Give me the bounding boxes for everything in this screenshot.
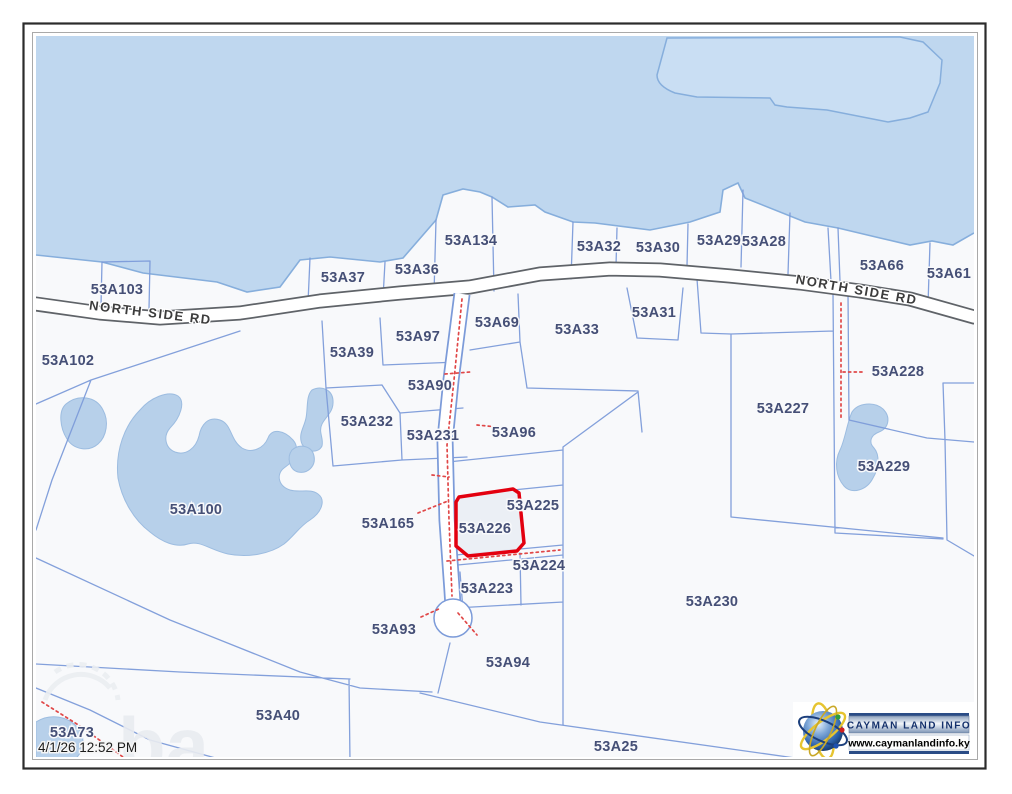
parcel-label-53A224: 53A224 bbox=[513, 558, 566, 574]
map-viewer-window: { "frame": { "timestamp": "4/1/26 12:52 … bbox=[0, 0, 1012, 794]
parcel-label-53A94: 53A94 bbox=[486, 655, 530, 671]
pond-small bbox=[289, 446, 314, 472]
parcel-label-53A231: 53A231 bbox=[407, 428, 460, 444]
parcel-label-53A134: 53A134 bbox=[445, 233, 498, 249]
parcel-label-53A61: 53A61 bbox=[927, 266, 971, 282]
parcel-label-53A229: 53A229 bbox=[858, 459, 911, 475]
parcel-label-53A36: 53A36 bbox=[395, 262, 439, 278]
parcel-label-53A73: 53A73 bbox=[50, 725, 94, 741]
parcel-label-53A69: 53A69 bbox=[475, 315, 519, 331]
parcel-label-53A226[interactable]: 53A226 bbox=[459, 521, 512, 537]
parcel-label-53A40: 53A40 bbox=[256, 708, 300, 724]
parcel-label-53A28: 53A28 bbox=[742, 234, 786, 250]
parcel-label-53A33: 53A33 bbox=[555, 322, 599, 338]
parcel-label-53A230: 53A230 bbox=[686, 594, 739, 610]
parcel-label-53A100: 53A100 bbox=[170, 502, 223, 518]
parcel-label-53A25: 53A25 bbox=[594, 739, 638, 755]
parcel-label-53A223: 53A223 bbox=[461, 581, 514, 597]
parcel-label-53A90: 53A90 bbox=[408, 378, 452, 394]
parcel-label-53A102: 53A102 bbox=[42, 353, 95, 369]
cadastral-map[interactable]: ba 53A10353A10253A3753A3653A13453A3253A3… bbox=[0, 0, 1012, 794]
parcel-label-53A96: 53A96 bbox=[492, 425, 536, 441]
parcel-label-53A103: 53A103 bbox=[91, 282, 144, 298]
brand-url: www.caymanlandinfo.ky bbox=[847, 738, 970, 750]
parcel-label-53A31: 53A31 bbox=[632, 305, 676, 321]
parcel-label-53A97: 53A97 bbox=[396, 329, 440, 345]
parcel-label-53A39: 53A39 bbox=[330, 345, 374, 361]
parcel-label-53A165: 53A165 bbox=[362, 516, 415, 532]
parcel-label-53A32: 53A32 bbox=[577, 239, 621, 255]
parcel-label-53A228: 53A228 bbox=[872, 364, 925, 380]
parcel-label-53A37: 53A37 bbox=[321, 270, 365, 286]
parcel-label-53A227: 53A227 bbox=[757, 401, 810, 417]
parcel-label-53A93: 53A93 bbox=[372, 622, 416, 638]
cayman-land-info-logo: CAYMAN LAND INFO www.caymanlandinfo.ky bbox=[793, 702, 974, 761]
parcel-label-53A232: 53A232 bbox=[341, 414, 394, 430]
cul-de-sac bbox=[434, 599, 472, 637]
parcel-label-53A225: 53A225 bbox=[507, 498, 560, 514]
timestamp: 4/1/26 12:52 PM bbox=[38, 740, 137, 755]
parcel-label-53A29: 53A29 bbox=[697, 233, 741, 249]
parcel-label-53A30: 53A30 bbox=[636, 240, 680, 256]
brand-title: CAYMAN LAND INFO bbox=[847, 721, 971, 732]
parcel-label-53A66: 53A66 bbox=[860, 258, 904, 274]
